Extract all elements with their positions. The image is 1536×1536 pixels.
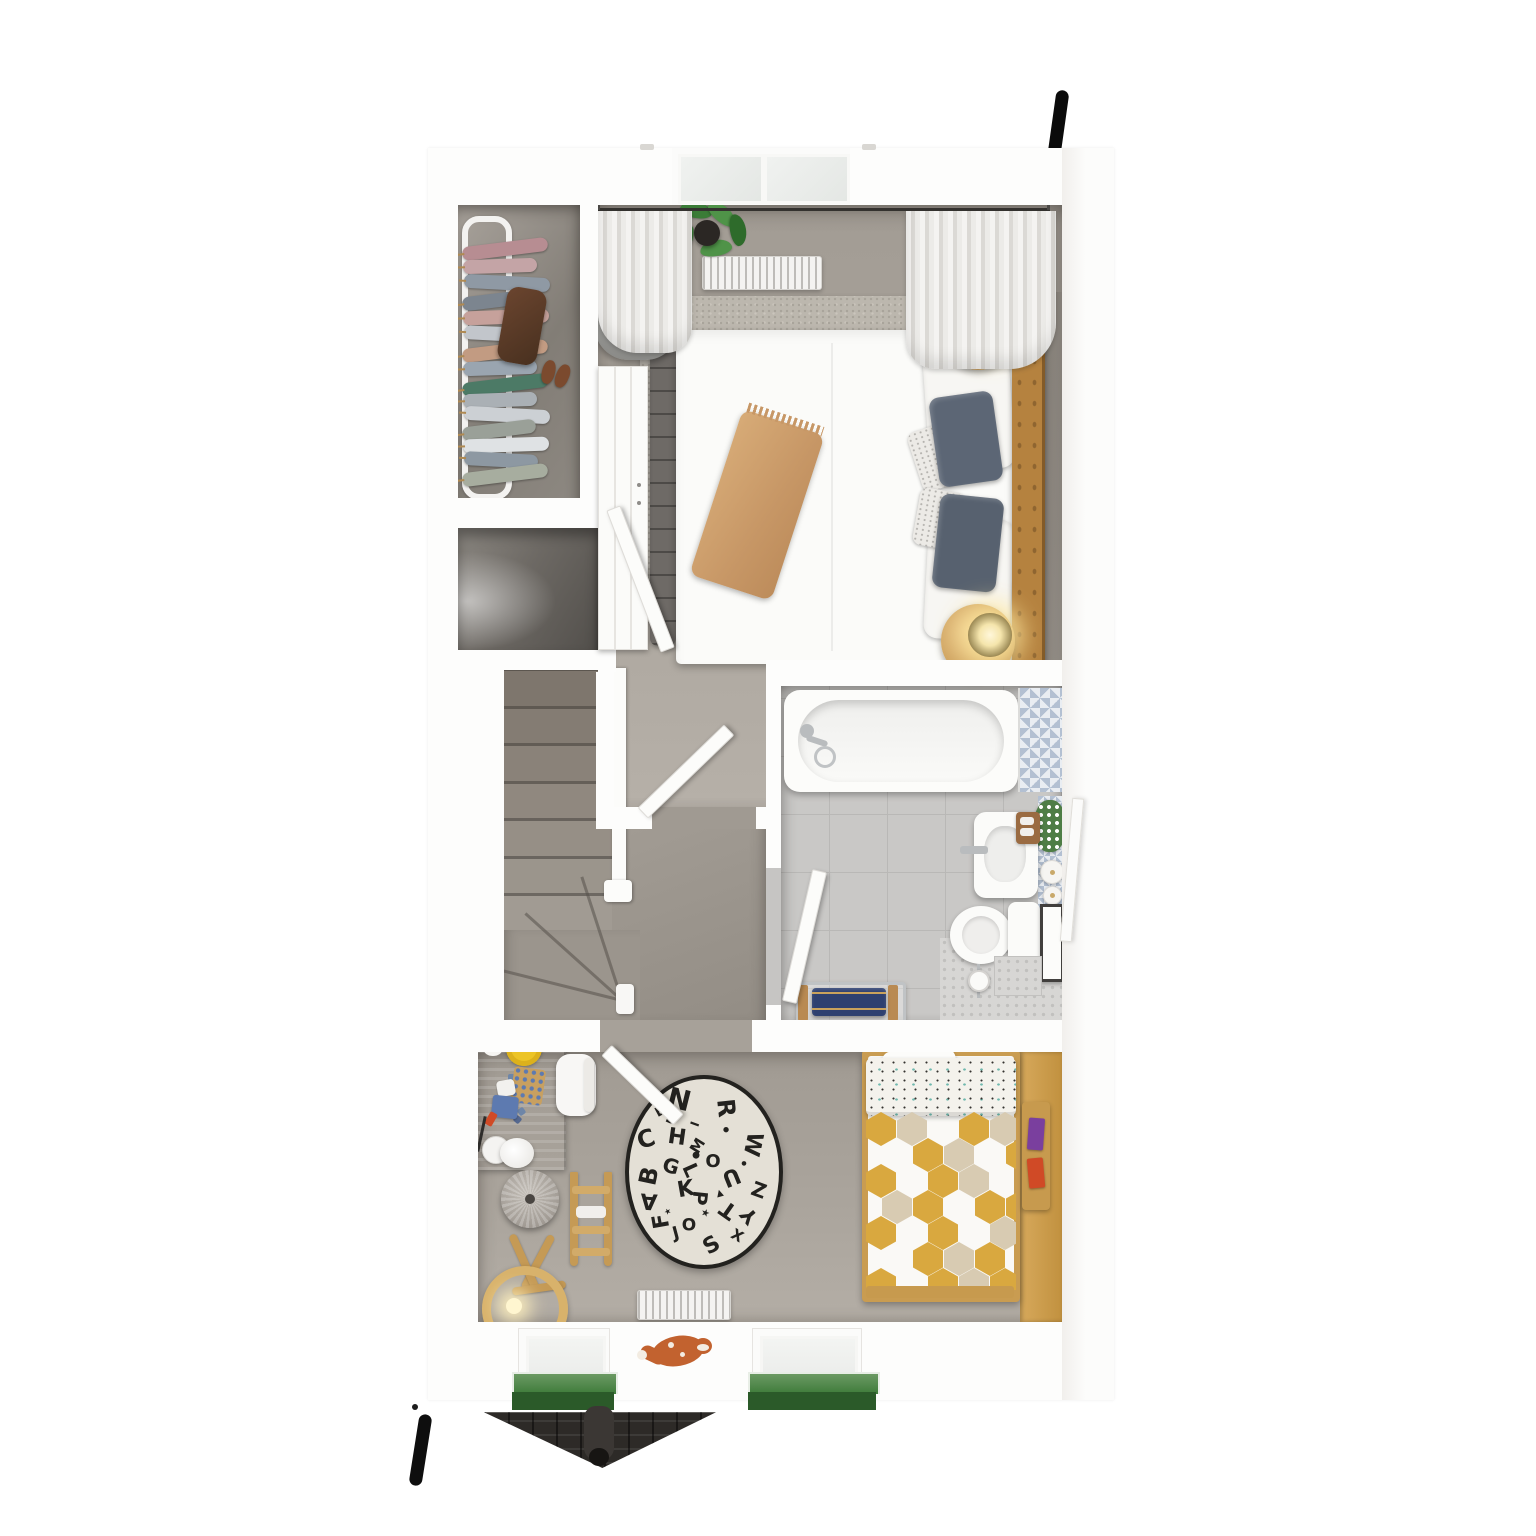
wall-left-kids: [428, 1052, 478, 1322]
rug-letter: O: [682, 1218, 696, 1235]
wall-bathroom-left: [766, 672, 781, 868]
candle: [1043, 886, 1062, 905]
wardrobe-handle: [637, 501, 641, 505]
rug-letter: P: [689, 1190, 710, 1207]
window-box-right: [748, 1372, 880, 1394]
closet-garments-bottom: [462, 378, 556, 480]
drainpipe-dot: [412, 1404, 418, 1410]
wardrobe-handle: [637, 483, 641, 487]
wall-closet-bedroom: [580, 205, 598, 512]
curtain-right: [906, 211, 1056, 369]
rug-letter: S: [700, 1233, 725, 1260]
fox-spot: [680, 1352, 685, 1357]
rug-letter: ●: [723, 1127, 729, 1134]
radiator: [702, 256, 822, 290]
candle: [1040, 860, 1064, 884]
bathroom-picture: [1040, 904, 1064, 982]
wall-kids-top-left: [428, 1020, 600, 1052]
drainpipe: [408, 1413, 432, 1486]
wall-bedroom-door-right: [756, 807, 768, 829]
fox-spot: [668, 1342, 674, 1348]
sledge-slat: [572, 1248, 610, 1256]
pillow-blue: [928, 390, 1004, 488]
wall-right: [1062, 148, 1114, 1400]
bathtub-basin: [798, 700, 1004, 782]
toilet-paper-roll: [968, 970, 990, 992]
stairwell-void: [458, 528, 598, 650]
bedside-bookshelf: [1022, 1102, 1050, 1210]
duvet-hexagon: [882, 1190, 912, 1224]
window-pane: [764, 154, 850, 204]
rug-letter: C: [634, 1125, 658, 1153]
animal-print-blanket: [866, 1058, 1016, 1116]
desk-chair-back: [584, 1058, 594, 1112]
soap-tray: [1016, 812, 1040, 844]
newel-post: [604, 880, 632, 902]
rug-letter: ▲: [715, 1189, 724, 1199]
wall-left-stairs: [428, 650, 504, 1020]
rug-letter: B: [635, 1165, 662, 1188]
fox-tail-tip: [637, 1350, 647, 1360]
alphabet-rug: NEDIRWCHMOBGLUAZKPTYFOJXS★●▲●★●: [625, 1075, 783, 1269]
rug-letter: W: [739, 1130, 766, 1158]
wall-kids-top-right: [752, 1020, 1062, 1052]
bedside-lamp: [968, 613, 1012, 657]
rug-letter: ●: [741, 1161, 746, 1167]
shower-hose: [814, 746, 836, 768]
built-in-wardrobe: [598, 366, 648, 650]
wall-alcove-left: [596, 672, 614, 810]
garment: [463, 258, 537, 275]
curtain-rod: [598, 208, 1050, 211]
accent-tiles: [1018, 688, 1064, 792]
hexagon-duvet: [866, 1112, 1016, 1290]
rug-letter: R: [713, 1098, 739, 1119]
bed-footboard: [866, 1286, 1014, 1298]
rug-letter: ●: [692, 1152, 700, 1161]
bathroom-doorway: [766, 868, 781, 1005]
navy-towel: [812, 988, 886, 1016]
hoop-light: [506, 1298, 522, 1314]
rug-letter: H: [666, 1126, 687, 1150]
wall-peg: [862, 144, 876, 150]
wall-peg: [640, 144, 654, 150]
rug-letter: I: [689, 1120, 702, 1128]
rug-letter: A: [640, 1188, 659, 1211]
pillow-blue: [931, 493, 1004, 593]
toilet-seat: [962, 916, 1000, 954]
duvet-hexagon: [990, 1112, 1016, 1146]
rug-letter: Z: [749, 1178, 769, 1202]
wall-void-bottom: [444, 650, 612, 670]
curtain-left: [598, 211, 692, 353]
basin-tap: [960, 846, 988, 854]
book: [1027, 1117, 1045, 1150]
duvet-hexagon: [866, 1112, 896, 1146]
rug-letter: ★: [699, 1208, 711, 1220]
duvet-hexagon: [866, 1216, 896, 1250]
sledge-slat: [572, 1186, 610, 1194]
window-pane: [678, 154, 764, 204]
plant-pot: [694, 220, 720, 246]
bench-wood-end: [888, 985, 898, 1021]
wall-bedroom-bathroom: [766, 660, 1062, 686]
newel-post-lower: [616, 984, 634, 1014]
window-box-right-front: [748, 1392, 876, 1410]
rug-letter: X: [728, 1227, 746, 1246]
roof-antenna: [1047, 89, 1069, 156]
floor-plan-3d-render: NEDIRWCHMOBGLUAZKPTYFOJXS★●▲●★●: [0, 0, 1536, 1536]
radiator: [637, 1290, 731, 1320]
porch-roof-finial: [589, 1448, 609, 1466]
sledge-pad: [576, 1206, 606, 1218]
pouf-button: [525, 1194, 535, 1204]
rug-letter: Y: [737, 1204, 762, 1228]
fox-cheeks: [697, 1344, 709, 1351]
rug-letter: J: [671, 1225, 682, 1243]
window-box-left: [512, 1372, 618, 1394]
duvet-hexagon: [866, 1164, 896, 1198]
book: [1027, 1157, 1046, 1188]
desk-lamp-shade: [500, 1138, 534, 1168]
tiled-ledge: [994, 956, 1042, 996]
wall-closet-bottom: [444, 498, 598, 528]
wardrobe-door-line: [630, 367, 632, 649]
bedroom-doorway: [652, 807, 756, 829]
sledge-slat: [572, 1226, 610, 1234]
duvet-hexagon: [897, 1112, 927, 1146]
stair-step: [504, 856, 612, 897]
rug-letter: U: [719, 1162, 744, 1189]
stair-railing: [612, 668, 626, 884]
rug-letter: G: [660, 1154, 681, 1178]
kids-doorway: [600, 1020, 752, 1052]
